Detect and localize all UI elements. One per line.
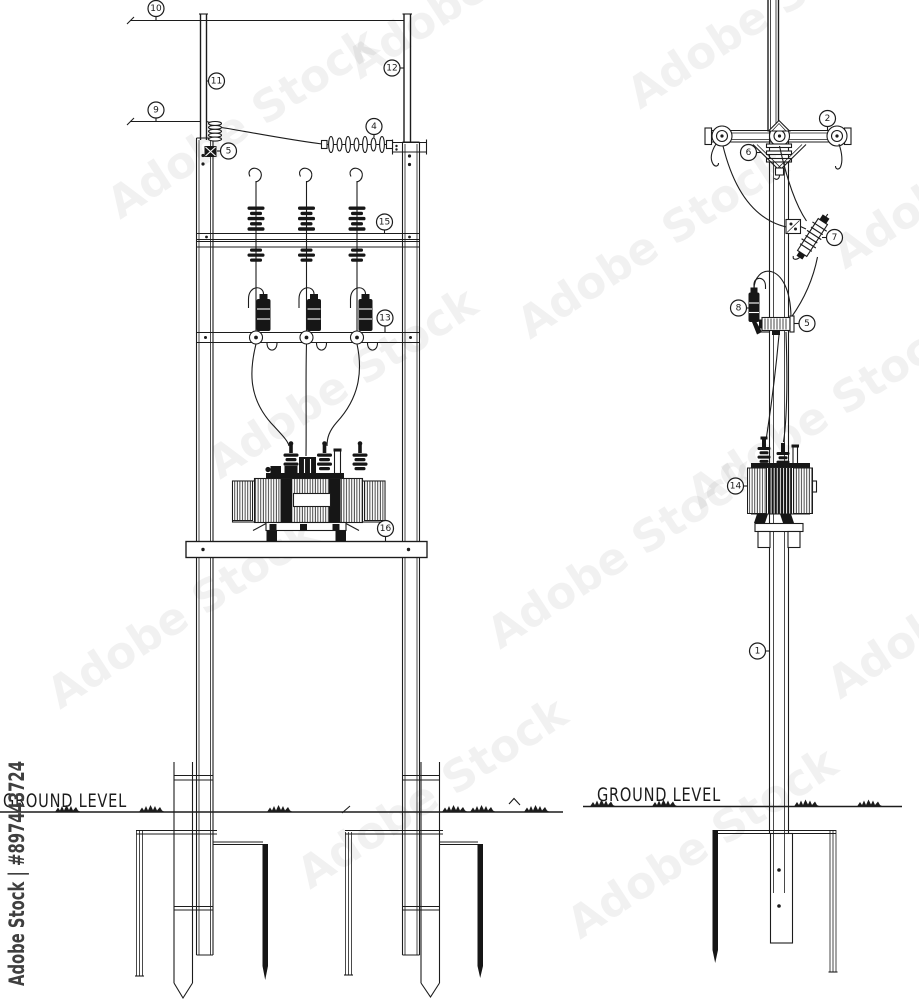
callout-9: 9 — [148, 102, 164, 122]
watermark-text: Adobe Stock — [288, 686, 578, 899]
cutout-crossarm — [197, 234, 420, 248]
arrester-2 — [299, 288, 321, 331]
callout-5-side-number: 5 — [804, 319, 810, 329]
callout-15-number: 15 — [379, 218, 390, 228]
callout-5-side: 5 — [794, 316, 815, 332]
callout-9-number: 9 — [153, 106, 159, 116]
watermark-text: Adobe Stock — [558, 736, 848, 949]
callout-11-number: 11 — [211, 77, 222, 87]
callout-6-number: 6 — [746, 148, 752, 158]
arrester-3 — [351, 288, 373, 331]
callout-16: 16 — [378, 521, 394, 542]
callout-1-number: 1 — [755, 647, 761, 657]
callout-4: 4 — [366, 119, 382, 138]
callout-11: 11 — [207, 73, 225, 89]
incoming-line — [127, 118, 200, 125]
callout-1: 1 — [750, 643, 770, 659]
technical-drawing-page: Adobe Stock Adobe Stock Adobe Stock Adob… — [0, 0, 919, 1000]
watermark-text: Adobe Stock — [198, 276, 488, 489]
callout-16-number: 16 — [380, 524, 392, 534]
callout-7: 7 — [822, 230, 843, 246]
foundation-left — [135, 762, 268, 998]
callout-10: 10 — [148, 1, 164, 21]
callout-12-number: 12 — [386, 64, 397, 74]
watermark-text: Adobe Stock — [38, 506, 328, 719]
callout-15: 15 — [377, 214, 393, 234]
callout-13-number: 13 — [379, 314, 390, 324]
surge-arresters — [249, 288, 373, 331]
callout-5-front-number: 5 — [226, 147, 232, 157]
callout-10-number: 10 — [150, 4, 162, 14]
arrester-1 — [249, 288, 271, 331]
callout-14-number: 14 — [730, 482, 742, 492]
watermark-text: Adobe Stock — [818, 496, 919, 709]
pole-bands — [767, 144, 792, 162]
ground-level-label-right: GROUND LEVEL — [597, 784, 721, 806]
bushing-front-3 — [353, 441, 368, 470]
watermark-text: Adobe Stock — [338, 0, 628, 89]
bushing-front-2 — [317, 441, 332, 470]
watermark-text: Adobe Stock — [823, 66, 919, 279]
callout-8: 8 — [731, 300, 749, 316]
callout-4-number: 4 — [371, 122, 377, 132]
callout-7-number: 7 — [832, 233, 838, 243]
callout-8-number: 8 — [736, 304, 742, 314]
platform — [186, 542, 427, 558]
callout-2-number: 2 — [825, 114, 831, 124]
stock-watermark-text: Adobe Stock | #897443724 — [5, 761, 30, 986]
watermark-text: Adobe Stock — [618, 0, 908, 119]
transformer-pole-drawing: Adobe Stock Adobe Stock Adobe Stock Adob… — [0, 0, 919, 1000]
